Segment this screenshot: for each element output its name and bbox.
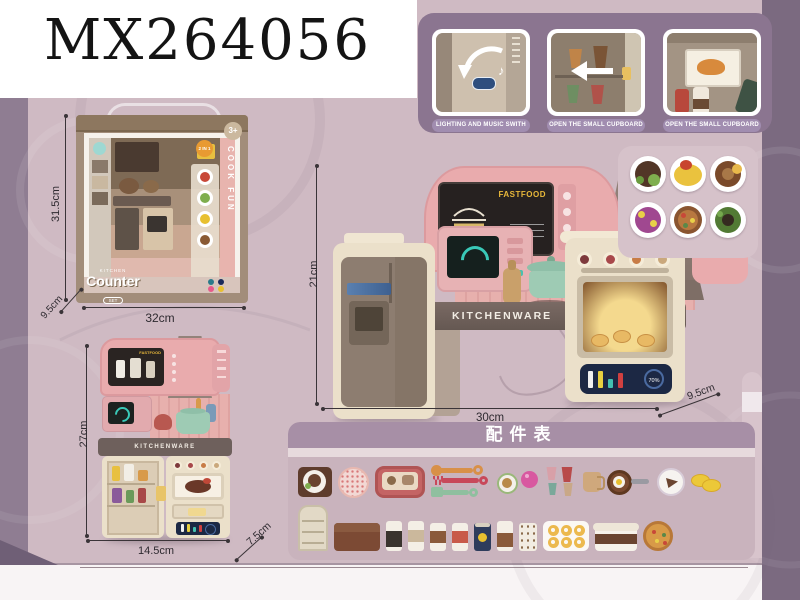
feature-caption: OPEN THE SMALL CUPBOARD: [663, 119, 761, 132]
toy-pizza: [643, 521, 673, 551]
feature-photo-card: [547, 29, 645, 116]
oven-window: [577, 276, 673, 358]
utensil-set: [431, 464, 491, 500]
box-height-label: 31.5cm: [50, 176, 62, 232]
small-height-label: 27cm: [78, 406, 90, 462]
small-green-pot: [176, 412, 210, 434]
small-oven-shelf: [172, 504, 224, 519]
display-rack: [298, 505, 328, 551]
croissant: [637, 334, 655, 347]
product-code-box: MX264056: [0, 0, 417, 98]
small-oven-window: [172, 473, 224, 500]
roast-chicken-icon: [697, 59, 725, 75]
feature-caption: OPEN THE SMALL CUPBOARD: [547, 119, 645, 132]
microwave-screen: [447, 236, 499, 278]
small-microwave: [102, 396, 152, 432]
oven-knob: [577, 252, 592, 267]
small-oven-display: [176, 522, 220, 535]
box-food-shelf: [191, 164, 219, 284]
box-width-label: 32cm: [130, 311, 190, 325]
box-side-photos: [89, 138, 111, 288]
chicken-screen: [685, 49, 741, 87]
small-oven-knob: [212, 461, 221, 470]
omelet-rice-plate: [670, 156, 706, 192]
logo-sub: SET: [103, 297, 124, 304]
label-bottle: [430, 523, 446, 551]
box-side-strip: COOK FUN: [220, 138, 235, 288]
small-oven-knob: [199, 461, 208, 470]
cream-bottle: [408, 521, 424, 551]
small-kitchenware-text: KITCHENWARE: [134, 444, 195, 450]
green-salad-plate: [710, 202, 746, 238]
cocoa-carton: [497, 521, 513, 551]
feature-photo-card: ♪: [432, 29, 530, 116]
box-logo: KITCHEN Counter SET: [82, 268, 144, 307]
small-fridge: [102, 456, 164, 538]
feature-photo-card: [663, 29, 761, 116]
logo-main: Counter: [82, 273, 144, 289]
pizza-plate: [670, 202, 706, 238]
purple-salad-plate: [630, 202, 666, 238]
light-music-switch-photo: ♪: [436, 33, 526, 112]
ice-dispenser: [349, 301, 389, 345]
feature-caption: LIGHTING AND MUSIC SWITH: [432, 119, 530, 132]
play-cups: [545, 467, 577, 497]
small-oven-knob: [186, 461, 195, 470]
red-jar: [675, 89, 689, 112]
oven-knob: [603, 252, 618, 267]
small-width-label: 14.5cm: [116, 545, 196, 557]
main-height-label: 21cm: [308, 246, 320, 302]
snack-plate-and-onion: [497, 467, 539, 497]
box-window-scene: COOK FUN: [89, 138, 235, 288]
corn-pats: [691, 472, 721, 492]
chocolate-donut-plate: [710, 156, 746, 192]
small-counter: KITCHENWARE: [98, 438, 232, 456]
frying-pan-with-egg: [607, 469, 651, 496]
meat-and-greens-plate: [630, 156, 666, 192]
small-red-kettle: [154, 414, 172, 430]
accessories-panel: 配件表: [288, 422, 755, 560]
oven-display: 70%: [580, 364, 672, 394]
small-cupboard-photo: [667, 33, 757, 112]
main-fridge: [333, 243, 435, 419]
box-side-text: COOK FUN: [220, 146, 235, 213]
box-roundel: [93, 142, 106, 155]
box-width-line: [84, 307, 244, 308]
dessert-plate: [657, 468, 685, 496]
small-oven-knob: [173, 461, 182, 470]
chocolate-slab: [334, 523, 380, 551]
milk-carton: [693, 87, 709, 112]
donut-tray: [543, 521, 589, 551]
mode-badge: 2 IN 1: [196, 140, 213, 157]
accessories-row-2: [288, 505, 755, 557]
accessories-row-1: [288, 459, 755, 505]
fastfood-sign: FASTFOOD: [498, 190, 546, 199]
oven-gauge: 70%: [644, 369, 664, 389]
food-plates-panel: [618, 146, 758, 258]
croissant: [591, 334, 609, 347]
serving-board-with-plate: [298, 467, 332, 497]
pitcher: [583, 472, 601, 492]
small-oven: [166, 456, 230, 538]
sauce-carton: [452, 523, 468, 551]
oven-glass: [583, 282, 667, 352]
small-vent-dots: [168, 350, 180, 384]
sauce-bottle: [503, 268, 521, 304]
small-door-latch: [156, 486, 166, 501]
left-arrow-icon: [551, 33, 641, 112]
catalog-sheet: { "product_code": "MX264056", "features"…: [0, 0, 800, 600]
ice-cream-tub: [595, 523, 637, 551]
accessories-title: 配件表: [288, 422, 755, 448]
small-right-vent: [212, 344, 230, 392]
small-pot-lid: [180, 408, 206, 414]
main-width-line: [323, 408, 657, 409]
navy-jar: [474, 523, 491, 551]
croissant: [613, 330, 631, 343]
small-menu-screen: FASTFOOD: [108, 348, 164, 386]
dotted-mat: [338, 467, 369, 498]
curved-arrow-icon: [436, 33, 526, 112]
age-badge: 3+: [224, 122, 242, 140]
cupboard-open-photo: [551, 33, 641, 112]
fridge-display: [347, 283, 391, 295]
small-fastfood-sign: FASTFOOD: [139, 350, 161, 355]
feature-photos-panel: ♪ LIGHTING AND MU: [418, 13, 772, 133]
snack-packet: [519, 523, 537, 551]
product-code: MX264056: [44, 8, 417, 73]
box-height-line: [65, 116, 66, 300]
small-width-line: [88, 540, 228, 541]
serving-tray: [375, 466, 425, 498]
dark-milk-carton: [386, 521, 402, 551]
accessories-divider: [288, 448, 755, 457]
